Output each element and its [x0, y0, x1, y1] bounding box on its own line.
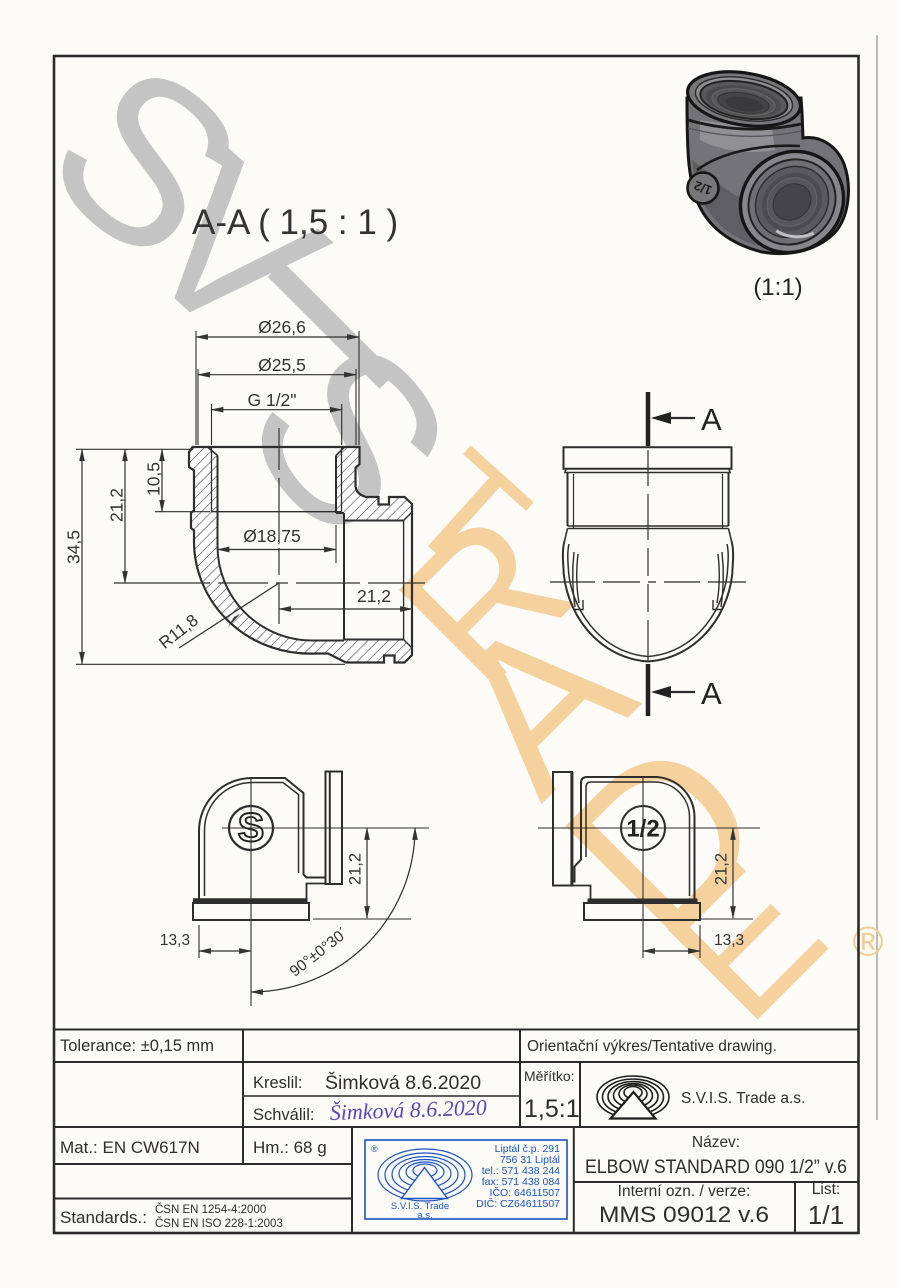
svg-text:Mat.: EN CW617N: Mat.: EN CW617N: [60, 1138, 200, 1157]
svg-text:34,5: 34,5: [64, 530, 84, 564]
svg-text:List:: List:: [812, 1181, 840, 1198]
svg-text:®: ®: [853, 918, 884, 965]
svg-text:Název:: Název:: [692, 1134, 740, 1151]
svg-text:21,2: 21,2: [107, 488, 127, 522]
svg-text:Orientační výkres/Tentative dr: Orientační výkres/Tentative drawing.: [527, 1038, 777, 1055]
svg-text:ELBOW STANDARD 090 1/2” v.6: ELBOW STANDARD 090 1/2” v.6: [585, 1157, 847, 1178]
svg-text:ČSN EN ISO 228-1:2003: ČSN EN ISO 228-1:2003: [155, 1217, 283, 1230]
svg-text:A-A ( 1,5 : 1 ): A-A ( 1,5 : 1 ): [192, 203, 398, 242]
svg-text:MMS 09012 v.6: MMS 09012 v.6: [599, 1202, 769, 1227]
svg-text:21,2: 21,2: [712, 853, 730, 885]
svg-text:Ø18,75: Ø18,75: [243, 526, 300, 546]
svg-text:a.s.: a.s.: [417, 1210, 432, 1221]
svg-text:A: A: [701, 676, 722, 711]
svg-text:Interní ozn. / verze:: Interní ozn. / verze:: [618, 1183, 751, 1200]
svg-text:®: ®: [371, 1144, 378, 1154]
svg-text:G 1/2": G 1/2": [247, 390, 296, 410]
svg-text:13,3: 13,3: [160, 932, 190, 949]
svg-text:DIČ: CZ64611507: DIČ: CZ64611507: [476, 1197, 560, 1210]
svg-text:Měřítko:: Měřítko:: [524, 1068, 575, 1084]
svg-text:Tolerance: ±0,15 mm: Tolerance: ±0,15 mm: [60, 1037, 214, 1055]
svg-text:21,2: 21,2: [346, 853, 364, 885]
svg-text:13,3: 13,3: [714, 932, 744, 949]
svg-text:21,2: 21,2: [357, 586, 391, 606]
svg-text:(1:1): (1:1): [753, 274, 802, 301]
svg-text:Šimková 8.6.2020: Šimková 8.6.2020: [325, 1071, 481, 1094]
svg-text:A: A: [701, 402, 722, 437]
svg-text:Ø25,5: Ø25,5: [258, 355, 306, 375]
svg-text:Kreslil:: Kreslil:: [253, 1074, 303, 1092]
svg-text:Standards.:: Standards.:: [60, 1208, 147, 1227]
svg-text:Hm.: 68 g: Hm.: 68 g: [253, 1138, 327, 1157]
svg-text:1,5:1: 1,5:1: [524, 1095, 580, 1123]
svg-text:10,5: 10,5: [144, 462, 164, 496]
svg-text:S.V.I.S. Trade a.s.: S.V.I.S. Trade a.s.: [681, 1090, 805, 1107]
svg-text:Ø26,6: Ø26,6: [258, 317, 306, 337]
svg-text:ČSN EN 1254-4:2000: ČSN EN 1254-4:2000: [155, 1203, 266, 1216]
svg-text:1/1: 1/1: [808, 1200, 844, 1230]
svg-text:Schválil:: Schválil:: [253, 1106, 314, 1124]
